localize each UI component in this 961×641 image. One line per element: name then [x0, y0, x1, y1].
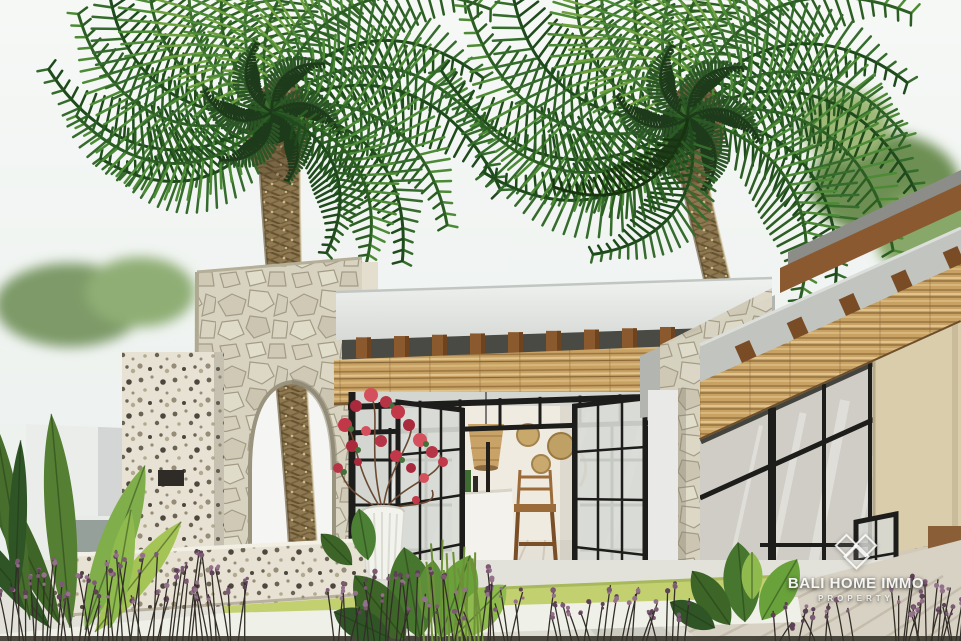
villa-render-scene — [0, 0, 961, 641]
rattan-wall-plate — [548, 433, 574, 459]
rattan-wall-plate — [532, 455, 550, 473]
villa-render-image: BALI HOME IMMO PROPERTY — [0, 0, 961, 641]
